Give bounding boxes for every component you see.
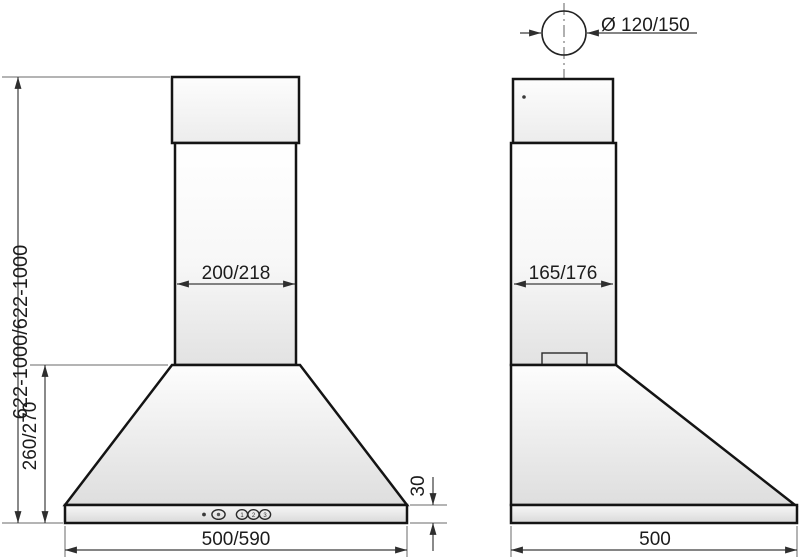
technical-drawing-canvas: 1 2 3 622-1000/622-1000 260/270 200/218: [0, 0, 800, 560]
canopy-height-label: 260/270: [20, 402, 41, 471]
side-view: Ø 120/150 165/176 500: [511, 3, 797, 557]
front-lower-chimney-section: [175, 143, 296, 365]
side-upper-chimney-section: [513, 79, 613, 143]
overall-depth-label: 500: [639, 529, 671, 550]
light-button-glyph-icon: [217, 513, 220, 516]
chimney-depth-label: 165/176: [529, 263, 598, 284]
side-canopy: [511, 365, 795, 505]
side-base-strip: [511, 505, 797, 523]
power-led-icon: [202, 513, 206, 517]
dimension-base-height: 30: [408, 475, 447, 551]
duct-diameter-label: Ø 120/150: [601, 15, 690, 36]
front-canopy: [65, 365, 407, 505]
front-upper-chimney-section: [172, 77, 299, 143]
base-height-label: 30: [408, 475, 429, 496]
dimension-duct-diameter: Ø 120/150: [520, 11, 697, 55]
front-view: 1 2 3 622-1000/622-1000 260/270 200/218: [2, 77, 447, 557]
overall-width-label: 500/590: [202, 529, 271, 550]
dimension-overall-depth: 500: [511, 526, 797, 557]
hood-dimension-drawing: 1 2 3 622-1000/622-1000 260/270 200/218: [0, 0, 800, 560]
chimney-screw-dot-icon: [522, 95, 526, 99]
height-range-label: 622-1000/622-1000: [10, 245, 32, 420]
side-lower-chimney-section: [511, 143, 616, 365]
dimension-overall-width: 500/590: [65, 526, 407, 557]
chimney-width-label: 200/218: [202, 263, 271, 284]
